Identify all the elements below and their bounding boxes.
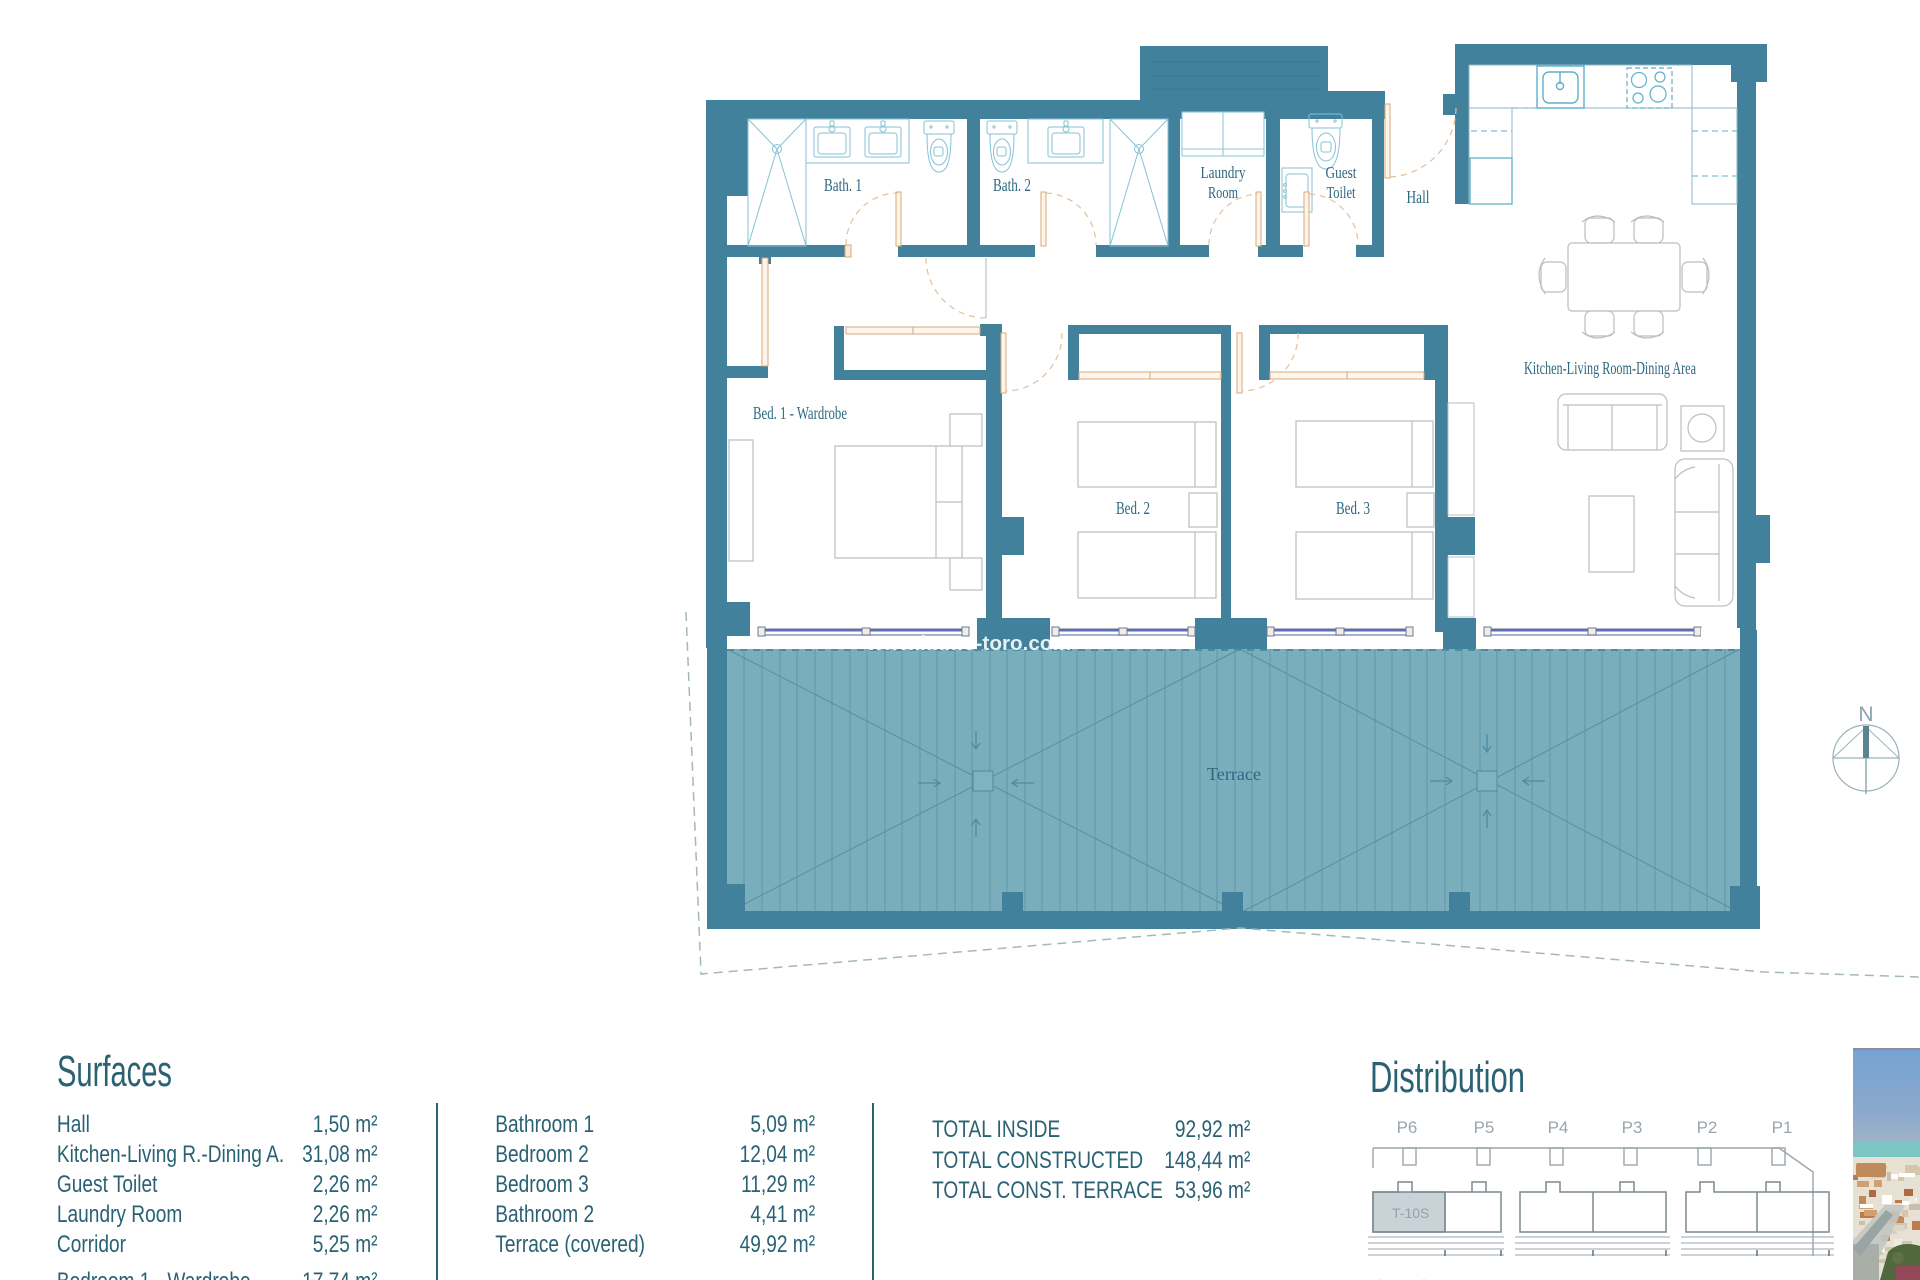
svg-text:49,92 m²: 49,92 m² <box>740 1230 815 1258</box>
svg-text:Bed. 1 - Wardrobe: Bed. 1 - Wardrobe <box>753 403 847 423</box>
svg-text:12,04 m²: 12,04 m² <box>740 1140 815 1168</box>
svg-text:Bed. 3: Bed. 3 <box>1336 498 1370 518</box>
svg-text:1,50 m²: 1,50 m² <box>313 1110 378 1138</box>
svg-text:P6: P6 <box>1397 1118 1418 1137</box>
svg-text:TOTAL CONST. TERRACE: TOTAL CONST. TERRACE <box>932 1176 1163 1204</box>
svg-text:Bathroom 2: Bathroom 2 <box>495 1200 594 1228</box>
svg-text:N: N <box>1858 703 1873 726</box>
svg-text:Guest Toilet: Guest Toilet <box>57 1170 158 1198</box>
svg-text:Bathroom 1: Bathroom 1 <box>495 1110 594 1138</box>
svg-text:P1: P1 <box>1772 1118 1793 1137</box>
svg-text:Bath. 1: Bath. 1 <box>824 175 862 195</box>
svg-text:Bed. 2: Bed. 2 <box>1116 498 1150 518</box>
svg-text:4,41 m²: 4,41 m² <box>750 1200 815 1228</box>
svg-text:Kitchen-Living Room-Dining Are: Kitchen-Living Room-Dining Area <box>1524 358 1696 378</box>
svg-text:Laundry: Laundry <box>1201 163 1246 182</box>
svg-text:Toilet: Toilet <box>1327 183 1356 202</box>
svg-text:P2: P2 <box>1697 1118 1718 1137</box>
svg-text:5,25 m²: 5,25 m² <box>313 1230 378 1258</box>
svg-text:www.immo-toro.com: www.immo-toro.com <box>866 633 1071 655</box>
svg-text:Surfaces: Surfaces <box>57 1047 172 1096</box>
svg-text:2,26 m²: 2,26 m² <box>313 1200 378 1228</box>
svg-text:Bedroom 1 - Wardrobe: Bedroom 1 - Wardrobe <box>57 1267 251 1280</box>
svg-text:53,96 m²: 53,96 m² <box>1175 1176 1250 1204</box>
svg-text:Bedroom 2: Bedroom 2 <box>495 1140 588 1168</box>
svg-text:TOTAL INSIDE: TOTAL INSIDE <box>932 1115 1060 1143</box>
svg-text:Terrace: Terrace <box>1207 764 1261 784</box>
svg-text:Hall: Hall <box>1407 187 1430 207</box>
svg-text:Corridor: Corridor <box>57 1230 126 1258</box>
svg-text:Room: Room <box>1208 183 1238 202</box>
svg-text:Bath. 2: Bath. 2 <box>993 175 1031 195</box>
svg-text:Laundry Room: Laundry Room <box>57 1200 182 1228</box>
svg-text:5,09 m²: 5,09 m² <box>750 1110 815 1138</box>
svg-text:P5: P5 <box>1474 1118 1495 1137</box>
svg-text:Terrace (covered): Terrace (covered) <box>495 1230 645 1258</box>
svg-text:2,26 m²: 2,26 m² <box>313 1170 378 1198</box>
svg-text:31,08 m²: 31,08 m² <box>302 1140 377 1168</box>
svg-text:Distribution: Distribution <box>1370 1053 1525 1102</box>
svg-text:T-10S: T-10S <box>1392 1205 1429 1221</box>
svg-text:11,29 m²: 11,29 m² <box>741 1170 815 1198</box>
svg-text:TOTAL CONSTRUCTED: TOTAL CONSTRUCTED <box>932 1146 1143 1174</box>
svg-text:Kitchen-Living R.-Dining A.: Kitchen-Living R.-Dining A. <box>57 1140 284 1168</box>
svg-text:17,74 m²: 17,74 m² <box>302 1267 377 1280</box>
svg-text:148,44 m²: 148,44 m² <box>1164 1146 1250 1174</box>
svg-text:Hall: Hall <box>57 1110 90 1138</box>
svg-text:P4: P4 <box>1548 1118 1569 1137</box>
svg-text:Bedroom 3: Bedroom 3 <box>495 1170 588 1198</box>
svg-text:Guest: Guest <box>1326 163 1357 182</box>
svg-text:92,92 m²: 92,92 m² <box>1175 1115 1250 1143</box>
svg-text:P3: P3 <box>1622 1118 1643 1137</box>
